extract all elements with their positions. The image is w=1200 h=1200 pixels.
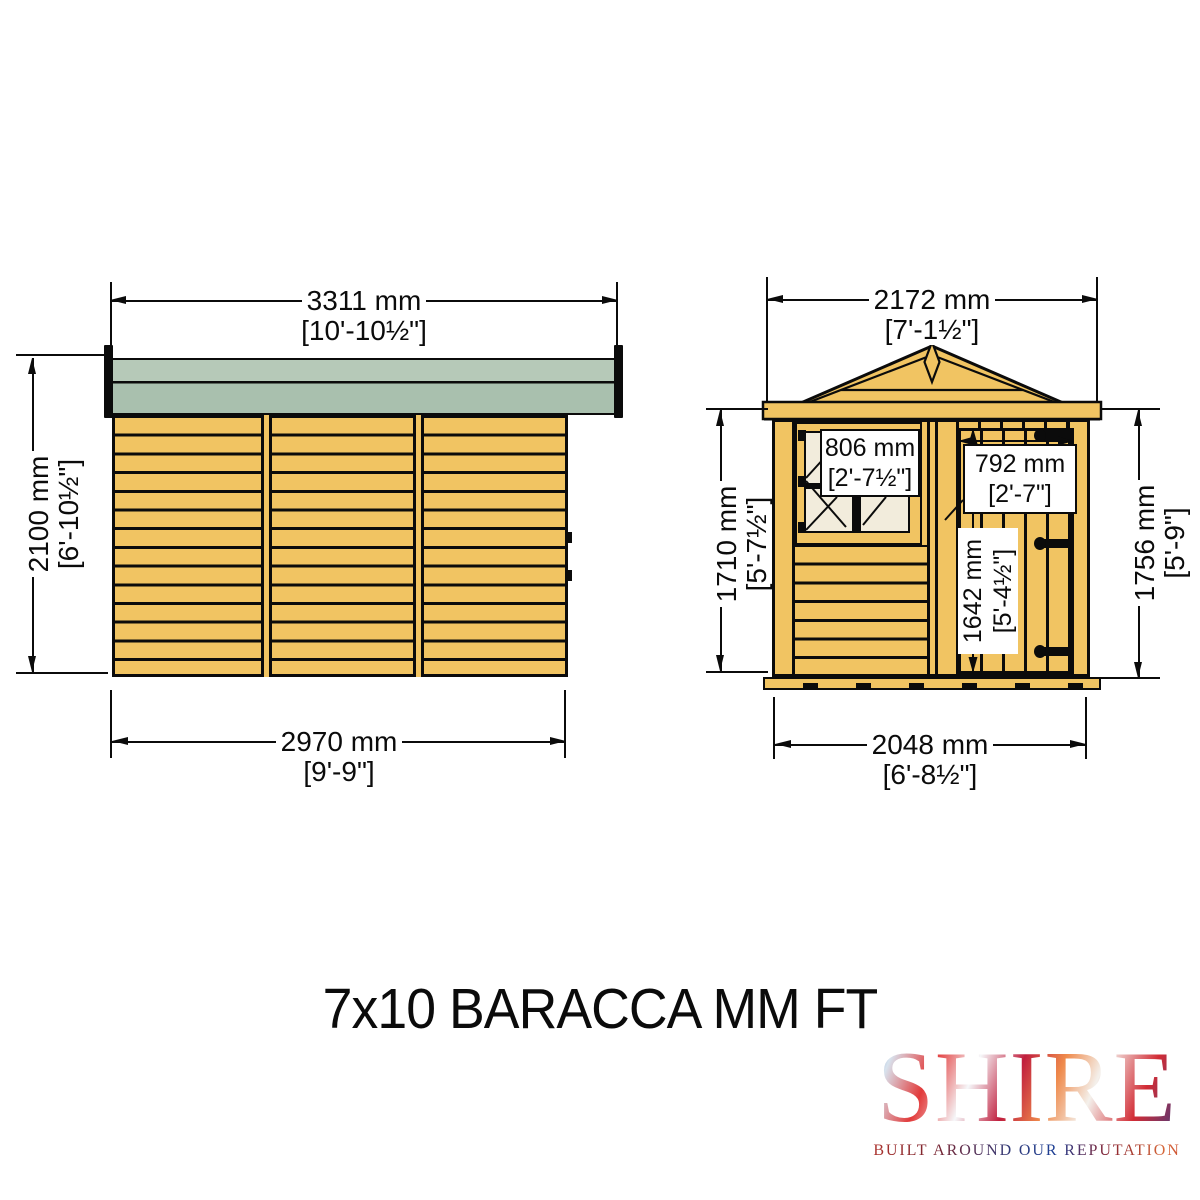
dim-arrow	[716, 410, 724, 426]
dim-label-mm: 2048 mm	[867, 730, 994, 760]
dim-label-ft: [6'-8½"]	[878, 760, 983, 790]
dim-label-mm: 1756 mm	[1130, 480, 1160, 607]
brand-logo: SHIRE BUILT AROUND OUR REPUTATION	[862, 1036, 1192, 1160]
side-wall-batten	[413, 415, 424, 677]
side-wall-hinge-nub	[565, 570, 572, 581]
dim-label-mm: 3311 mm	[302, 286, 427, 316]
window-width-callout: 806 mm [2'-7½"]	[820, 429, 920, 497]
dim-label-ft: [7'-1½"]	[880, 315, 985, 345]
dim-label-ft: [10'-10½"]	[296, 316, 432, 346]
side-wall	[112, 415, 568, 677]
dim-extension-line	[16, 672, 108, 674]
dim-arrow	[767, 295, 783, 303]
dim-extension-line	[1085, 697, 1087, 759]
dim-extension-line	[773, 697, 775, 759]
dim-arrow	[775, 740, 791, 748]
dim-label-ft: [6'-10½"]	[54, 454, 84, 574]
dim-label-mm: 2172 mm	[869, 285, 996, 315]
dim-label-ft: [9'-9"]	[298, 757, 379, 787]
dim-extension-line	[564, 690, 566, 758]
dim-label-ft: [2'-7½"]	[828, 463, 913, 493]
drawing-sheet: 3311 mm [10'-10½"] 2100 mm [6'-10½"] 297…	[0, 0, 1200, 1200]
dim-arrow	[602, 296, 618, 304]
dim-label-mm: 2100 mm	[24, 451, 54, 578]
side-roof	[110, 358, 618, 415]
dim-arrow	[28, 656, 36, 672]
dim-arrow	[112, 737, 128, 745]
side-wall-batten	[261, 415, 272, 677]
dim-extension-line	[16, 354, 108, 356]
brand-wordmark: SHIRE	[862, 1036, 1192, 1140]
dim-arrow	[1082, 295, 1098, 303]
dim-label-ft: [2'-7"]	[988, 479, 1052, 509]
side-wall-hinge-nub	[565, 532, 572, 543]
dim-extension-line	[110, 690, 112, 758]
dim-label-ft: [5'-7½"]	[742, 492, 772, 597]
dim-label-mm: 2970 mm	[276, 727, 403, 757]
dim-label-mm: 792 mm	[975, 449, 1065, 479]
dim-arrow	[716, 655, 724, 671]
dim-label-ft: [5'-4½"]	[988, 549, 1018, 634]
dim-arrow	[110, 296, 126, 304]
door-height-callout: 1642 mm [5'-4½"]	[958, 528, 1018, 654]
door-width-callout: 792 mm [2'-7"]	[963, 444, 1077, 514]
dim-arrow	[28, 358, 36, 374]
side-roof-end-cap-right	[614, 345, 623, 418]
dim-label-mm: 1710 mm	[712, 481, 742, 608]
dim-arrow	[550, 737, 566, 745]
dim-arrow	[1070, 740, 1086, 748]
dim-extension-line	[110, 282, 112, 346]
dim-label-mm: 1642 mm	[958, 539, 988, 643]
dim-label-ft: [5'-9"]	[1160, 502, 1190, 583]
dim-extension-line	[616, 282, 618, 346]
brand-tagline: BUILT AROUND OUR REPUTATION	[862, 1142, 1192, 1160]
dim-label-mm: 806 mm	[825, 433, 915, 463]
